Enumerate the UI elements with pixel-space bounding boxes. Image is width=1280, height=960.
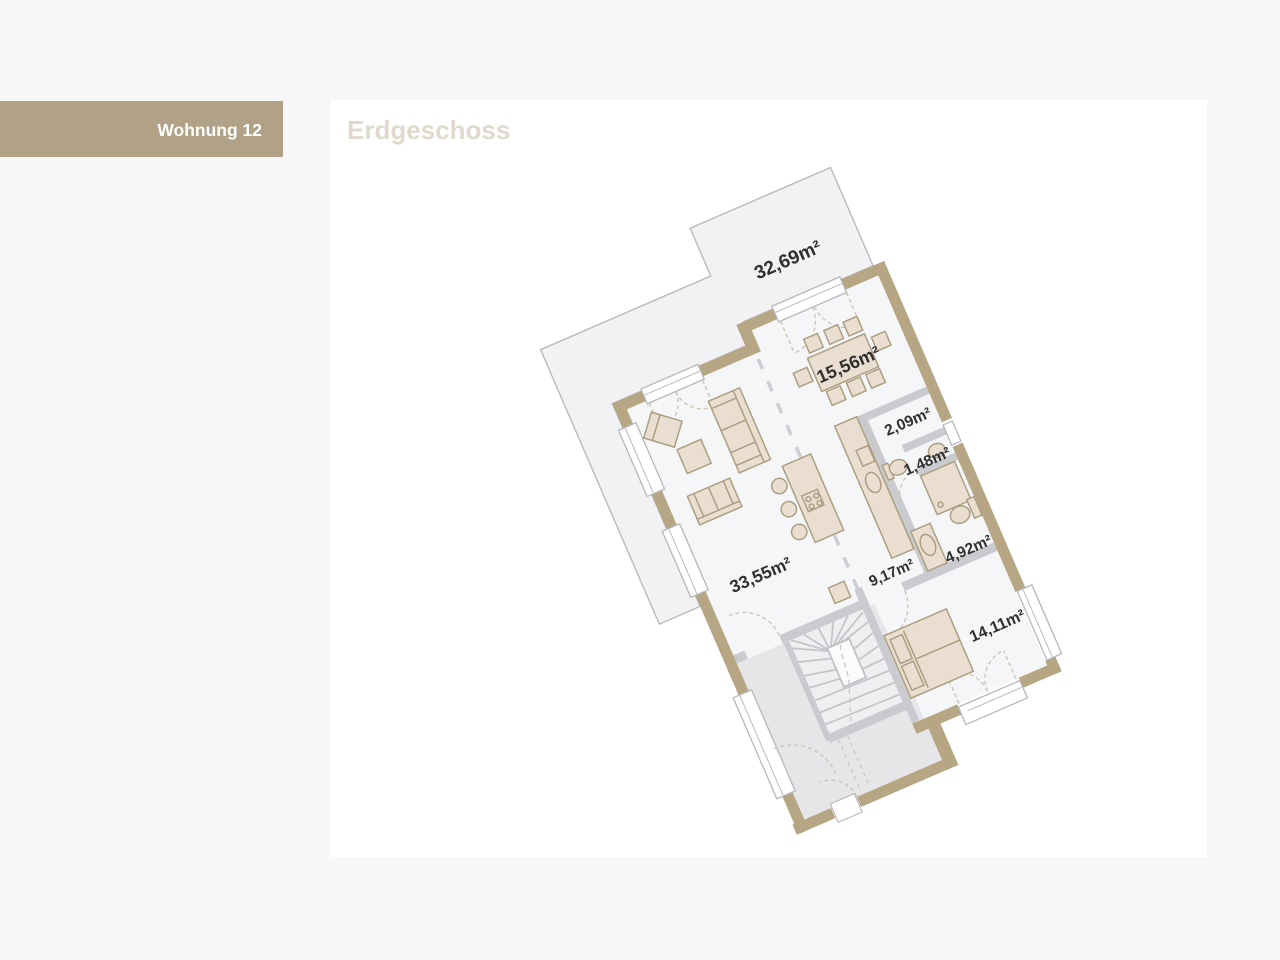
svg-text:Wohnung 12: Wohnung 12 — [157, 120, 262, 140]
svg-text:Erdgeschoss: Erdgeschoss — [347, 115, 510, 145]
